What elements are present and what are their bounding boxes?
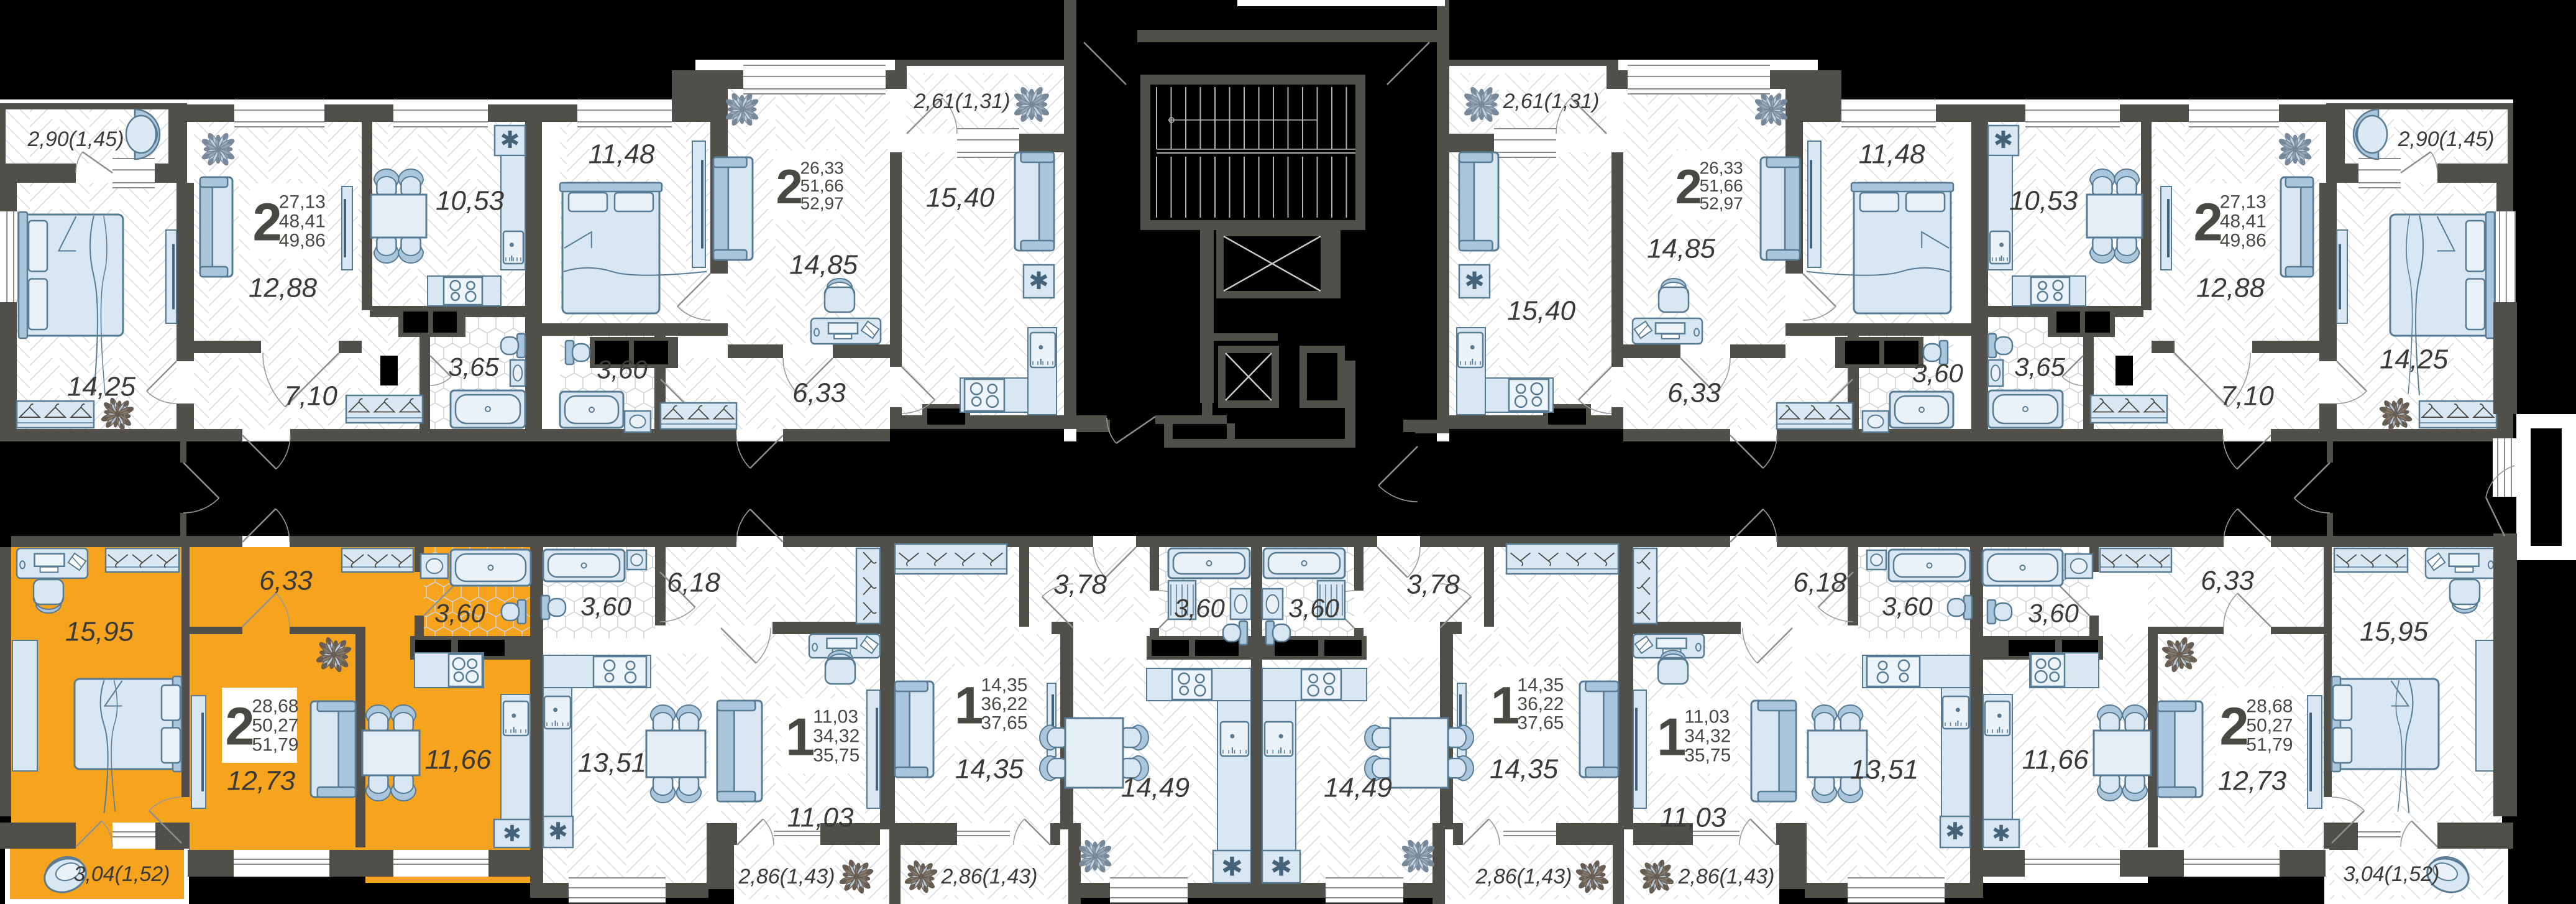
svg-text:14,85: 14,85	[1647, 234, 1716, 264]
svg-text:34,32: 34,32	[1684, 726, 1731, 747]
svg-text:14,25: 14,25	[67, 372, 136, 402]
svg-text:2,86(1,43): 2,86(1,43)	[738, 865, 835, 888]
svg-text:2,61(1,31): 2,61(1,31)	[914, 90, 1011, 113]
svg-text:14,35: 14,35	[1517, 675, 1564, 696]
svg-text:27,13: 27,13	[279, 192, 326, 213]
svg-text:26,33: 26,33	[1700, 159, 1743, 178]
svg-text:1: 1	[955, 676, 984, 734]
svg-text:2: 2	[2219, 697, 2248, 756]
svg-text:12,88: 12,88	[249, 273, 318, 303]
svg-text:6,33: 6,33	[1667, 378, 1721, 408]
svg-text:3,65: 3,65	[2014, 353, 2065, 382]
svg-text:35,75: 35,75	[813, 745, 859, 766]
svg-text:15,40: 15,40	[926, 183, 995, 213]
svg-text:2: 2	[2193, 193, 2222, 252]
svg-text:3,65: 3,65	[448, 353, 499, 382]
svg-text:34,32: 34,32	[813, 726, 859, 747]
svg-text:15,95: 15,95	[2360, 617, 2429, 647]
svg-text:14,85: 14,85	[789, 250, 858, 280]
svg-text:10,53: 10,53	[436, 186, 505, 216]
svg-text:36,22: 36,22	[1517, 694, 1564, 714]
svg-text:12,73: 12,73	[227, 766, 296, 796]
svg-text:2,86(1,43): 2,86(1,43)	[941, 865, 1038, 888]
svg-text:49,86: 49,86	[2220, 231, 2267, 251]
svg-text:52,97: 52,97	[800, 194, 844, 213]
svg-text:14,35: 14,35	[955, 754, 1024, 785]
svg-text:50,27: 50,27	[252, 716, 298, 736]
svg-text:3,60: 3,60	[1288, 594, 1339, 623]
svg-text:3,60: 3,60	[1912, 359, 1963, 388]
svg-text:2: 2	[1675, 159, 1702, 214]
svg-text:14,25: 14,25	[2380, 344, 2449, 375]
svg-text:14,49: 14,49	[1324, 773, 1392, 803]
svg-text:2: 2	[225, 697, 254, 756]
svg-text:7,10: 7,10	[284, 381, 337, 412]
svg-text:3,60: 3,60	[580, 592, 631, 621]
svg-text:10,53: 10,53	[2009, 186, 2078, 216]
svg-text:49,86: 49,86	[279, 231, 326, 251]
svg-text:12,88: 12,88	[2196, 273, 2265, 303]
svg-text:48,41: 48,41	[2220, 211, 2267, 232]
svg-text:51,79: 51,79	[2246, 735, 2293, 755]
svg-text:13,51: 13,51	[1850, 755, 1918, 785]
svg-text:2,90(1,45): 2,90(1,45)	[2398, 127, 2495, 151]
svg-text:51,66: 51,66	[800, 176, 844, 195]
svg-text:48,41: 48,41	[279, 211, 326, 232]
svg-text:12,73: 12,73	[2218, 766, 2287, 796]
svg-text:52,97: 52,97	[1700, 194, 1743, 213]
svg-text:3,60: 3,60	[1174, 594, 1225, 623]
svg-text:28,68: 28,68	[252, 696, 298, 717]
svg-text:11,48: 11,48	[1859, 139, 1925, 170]
svg-text:7,10: 7,10	[2221, 381, 2274, 412]
svg-text:26,33: 26,33	[800, 159, 844, 178]
svg-text:14,35: 14,35	[981, 675, 1027, 696]
svg-text:1: 1	[1491, 676, 1520, 734]
svg-text:11,03: 11,03	[813, 707, 858, 727]
svg-text:35,75: 35,75	[1684, 745, 1731, 766]
svg-text:11,03: 11,03	[787, 803, 854, 833]
svg-text:3,60: 3,60	[434, 599, 485, 628]
svg-text:6,33: 6,33	[259, 566, 313, 596]
svg-text:3,78: 3,78	[1053, 570, 1107, 600]
svg-text:37,65: 37,65	[981, 713, 1027, 734]
svg-text:15,95: 15,95	[65, 617, 134, 647]
svg-text:28,68: 28,68	[2246, 696, 2293, 717]
svg-text:3,04(1,52): 3,04(1,52)	[74, 862, 170, 886]
svg-text:11,66: 11,66	[425, 745, 492, 775]
svg-text:15,40: 15,40	[1507, 296, 1576, 326]
svg-text:1: 1	[786, 708, 815, 767]
svg-text:3,60: 3,60	[597, 355, 648, 384]
svg-text:3,04(1,52): 3,04(1,52)	[2344, 862, 2440, 886]
svg-text:37,65: 37,65	[1517, 713, 1564, 734]
svg-text:27,13: 27,13	[2220, 192, 2267, 213]
svg-text:2: 2	[252, 193, 282, 252]
svg-text:13,51: 13,51	[578, 748, 646, 778]
svg-text:2,86(1,43): 2,86(1,43)	[1678, 865, 1775, 888]
svg-text:3,78: 3,78	[1406, 570, 1460, 600]
svg-text:36,22: 36,22	[981, 694, 1027, 714]
svg-text:6,33: 6,33	[792, 378, 846, 408]
svg-text:14,49: 14,49	[1121, 773, 1189, 803]
svg-text:3,60: 3,60	[1882, 592, 1933, 621]
svg-text:51,79: 51,79	[252, 735, 298, 755]
svg-text:6,18: 6,18	[667, 568, 720, 598]
svg-text:2,61(1,31): 2,61(1,31)	[1503, 90, 1600, 113]
svg-text:50,27: 50,27	[2246, 716, 2293, 736]
svg-text:6,18: 6,18	[1793, 568, 1846, 598]
svg-text:11,48: 11,48	[589, 139, 655, 170]
svg-text:2: 2	[776, 159, 803, 214]
svg-text:3,60: 3,60	[2028, 599, 2079, 628]
svg-text:2,86(1,43): 2,86(1,43)	[1475, 865, 1572, 888]
svg-text:1: 1	[1657, 708, 1686, 767]
svg-text:51,66: 51,66	[1700, 176, 1743, 195]
svg-text:11,66: 11,66	[2022, 745, 2089, 775]
svg-text:2,90(1,45): 2,90(1,45)	[27, 127, 124, 151]
svg-text:11,03: 11,03	[1684, 707, 1730, 727]
svg-text:6,33: 6,33	[2201, 566, 2254, 596]
svg-text:11,03: 11,03	[1660, 803, 1726, 833]
svg-text:14,35: 14,35	[1490, 754, 1559, 785]
